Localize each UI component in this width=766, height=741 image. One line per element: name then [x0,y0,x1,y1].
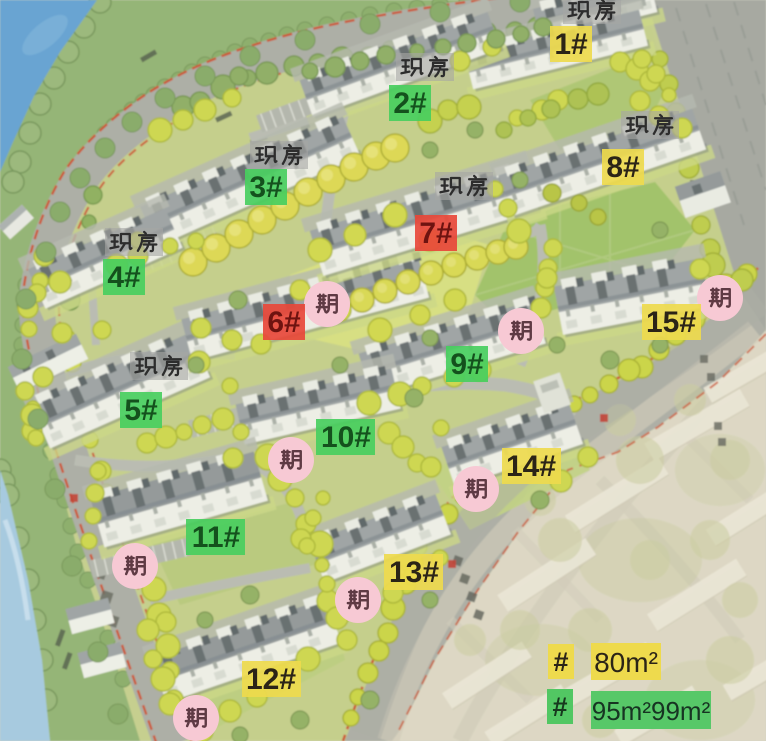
svg-text:1#: 1# [554,28,588,61]
svg-text:13#: 13# [389,556,439,589]
svg-text:80m²: 80m² [594,647,658,678]
svg-text:15#: 15# [646,306,696,339]
svg-text:7#: 7# [419,217,453,250]
svg-text:#: # [552,692,567,722]
svg-text:10#: 10# [321,421,371,454]
svg-text:12#: 12# [246,663,296,696]
svg-text:2#: 2# [393,87,427,120]
svg-text:4#: 4# [107,261,141,294]
svg-text:5#: 5# [124,394,158,427]
svg-text:3#: 3# [249,171,283,204]
svg-text:14#: 14# [506,450,556,483]
svg-text:8#: 8# [606,151,640,184]
svg-text:9#: 9# [450,348,484,381]
svg-text:95m²99m²: 95m²99m² [592,696,711,726]
svg-text:#: # [553,647,568,677]
svg-text:6#: 6# [267,306,301,339]
svg-text:11#: 11# [192,521,241,554]
